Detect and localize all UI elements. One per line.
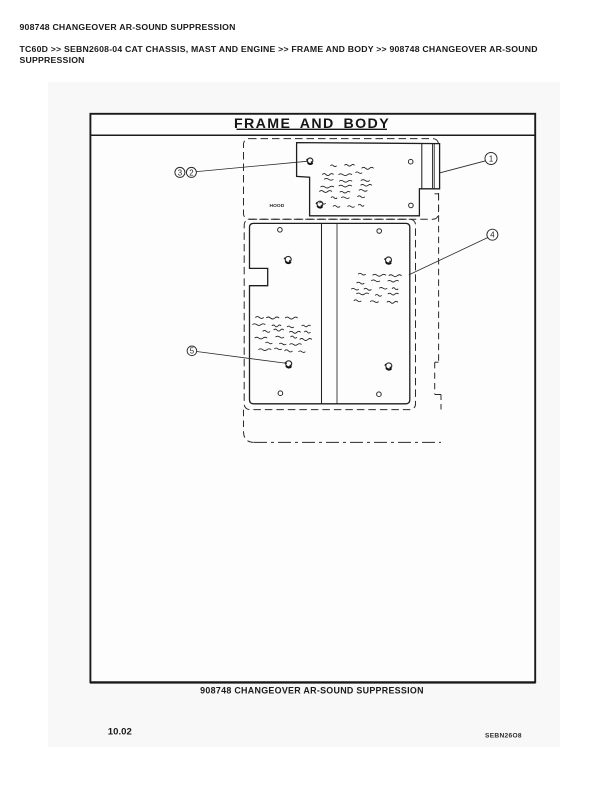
svg-text:SEBN26O8: SEBN26O8 xyxy=(485,733,522,740)
svg-text:2: 2 xyxy=(189,168,193,177)
svg-text:3: 3 xyxy=(178,168,182,177)
svg-text:10.02: 10.02 xyxy=(108,727,132,738)
svg-text:908748 CHANGEOVER AR-SOUND SUP: 908748 CHANGEOVER AR-SOUND SUPPRESSION xyxy=(200,685,424,695)
svg-text:HOOD: HOOD xyxy=(270,203,285,209)
svg-text:4: 4 xyxy=(490,231,495,240)
svg-text:5: 5 xyxy=(190,347,195,356)
svg-text:1: 1 xyxy=(489,155,493,164)
